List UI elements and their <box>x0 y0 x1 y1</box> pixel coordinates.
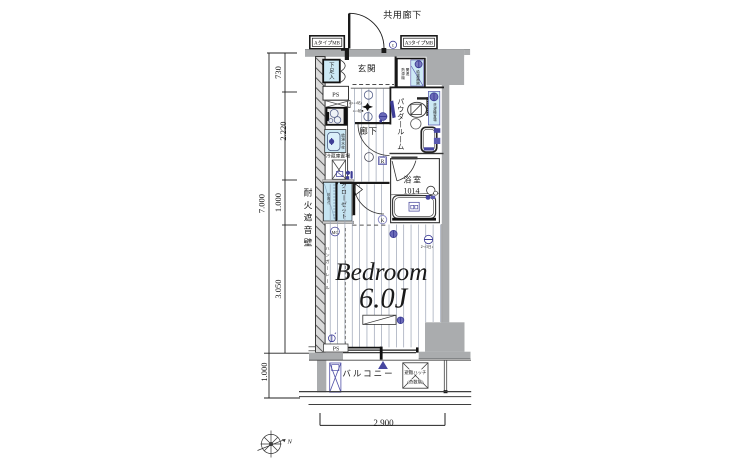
svg-text:避難ハッチ: 避難ハッチ <box>404 369 426 376</box>
svg-text:3.050: 3.050 <box>273 279 283 298</box>
svg-text:AタイプMB: AタイプMB <box>314 40 341 47</box>
svg-text:遮: 遮 <box>304 212 313 223</box>
svg-text:ゼ: ゼ <box>341 200 347 208</box>
svg-text:玄関: 玄関 <box>358 62 377 73</box>
svg-text:ッ: ッ <box>341 208 347 214</box>
svg-text:連: 連 <box>406 71 410 76</box>
svg-text:1=1帖■: 1=1帖■ <box>353 108 364 113</box>
svg-text:2.900: 2.900 <box>373 418 394 428</box>
svg-text:火: 火 <box>304 200 313 210</box>
svg-text:足: 足 <box>329 68 335 75</box>
svg-text:栓: 栓 <box>341 145 345 150</box>
svg-text:730: 730 <box>273 66 283 79</box>
svg-text:壁: 壁 <box>304 237 313 248</box>
svg-text:7.000: 7.000 <box>257 194 267 213</box>
svg-text:R: R <box>381 159 385 165</box>
svg-text:冷蔵庫置場: 冷蔵庫置場 <box>326 153 350 160</box>
svg-text:ト: ト <box>341 215 347 221</box>
svg-text:関: 関 <box>416 80 420 85</box>
svg-text:ク: ク <box>341 183 347 190</box>
svg-text:N: N <box>287 439 293 446</box>
svg-text:廊下: 廊下 <box>359 125 377 136</box>
svg-text:バルコニー: バルコニー <box>342 369 394 379</box>
svg-text:ム: ム <box>397 143 404 151</box>
svg-text:MC: MC <box>331 230 338 235</box>
svg-text:入: 入 <box>329 75 335 81</box>
svg-text:A3タイプMB: A3タイプMB <box>405 40 434 47</box>
svg-text:1.000: 1.000 <box>273 193 283 212</box>
svg-text:1.000: 1.000 <box>259 362 269 381</box>
svg-text:ガ: ガ <box>325 258 329 265</box>
svg-text:丨: 丨 <box>325 279 329 284</box>
svg-text:丨: 丨 <box>341 195 347 202</box>
svg-text:(奇数階): (奇数階) <box>407 379 424 386</box>
svg-text:丨: 丨 <box>325 266 329 271</box>
svg-text:ル: ル <box>325 285 329 290</box>
svg-text:2.220: 2.220 <box>278 121 288 140</box>
svg-text:レ: レ <box>325 272 329 277</box>
svg-text:2(1=1帖): 2(1=1帖) <box>349 100 362 105</box>
svg-text:音: 音 <box>304 224 313 235</box>
svg-text:2～3日♪: 2～3日♪ <box>421 245 434 249</box>
svg-text:6.0J: 6.0J <box>359 284 409 315</box>
svg-text:耐: 耐 <box>304 187 313 198</box>
svg-text:PS: PS <box>333 347 339 353</box>
svg-text:ロ: ロ <box>341 190 347 196</box>
svg-text:下: 下 <box>329 62 335 69</box>
svg-text:Bedroom: Bedroom <box>335 257 428 286</box>
svg-text:ハ: ハ <box>325 246 329 251</box>
svg-text:PS: PS <box>332 92 340 99</box>
svg-text:ン: ン <box>325 253 329 258</box>
svg-text:機: 機 <box>401 75 405 80</box>
svg-text:K: K <box>381 219 385 224</box>
svg-text:共用廊下: 共用廊下 <box>383 9 422 20</box>
